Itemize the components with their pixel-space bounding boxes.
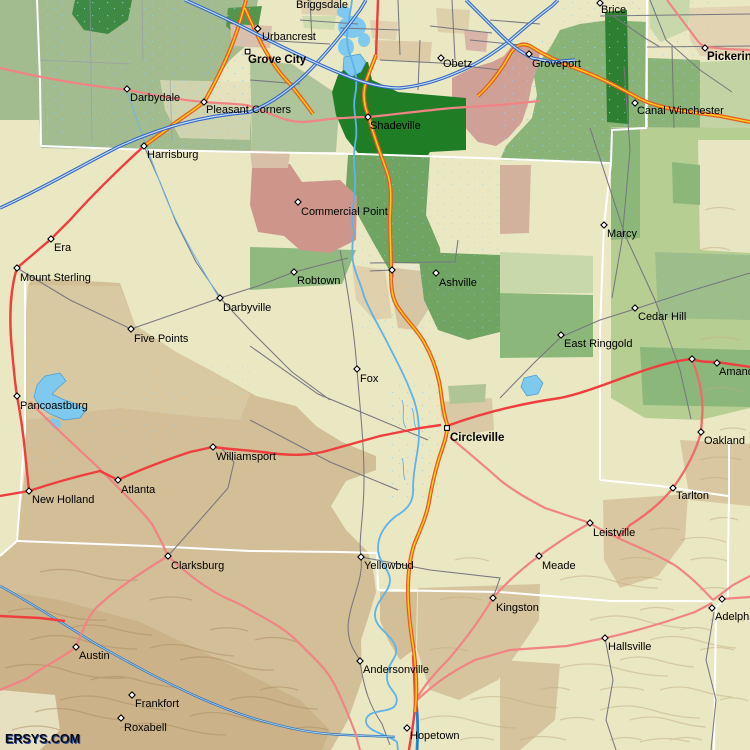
svg-text:Leistville: Leistville bbox=[593, 527, 635, 539]
svg-text:Andersonville: Andersonville bbox=[363, 664, 429, 676]
svg-text:Atlanta: Atlanta bbox=[121, 484, 156, 496]
svg-text:Harrisburg: Harrisburg bbox=[147, 149, 198, 161]
svg-text:Five Points: Five Points bbox=[134, 333, 189, 345]
svg-text:Tarlton: Tarlton bbox=[676, 490, 709, 502]
svg-text:Grove City: Grove City bbox=[248, 54, 307, 66]
svg-text:Era: Era bbox=[54, 242, 72, 254]
svg-text:Austin: Austin bbox=[79, 650, 110, 662]
svg-text:ERSYS.COM: ERSYS.COM bbox=[5, 732, 80, 746]
svg-text:Mount Sterling: Mount Sterling bbox=[20, 272, 91, 284]
svg-text:Roxabell: Roxabell bbox=[124, 722, 167, 734]
svg-text:Hopetown: Hopetown bbox=[410, 730, 460, 742]
svg-text:Circleville: Circleville bbox=[450, 432, 504, 444]
svg-text:Williamsport: Williamsport bbox=[216, 451, 276, 463]
svg-text:Pleasant Corners: Pleasant Corners bbox=[206, 104, 291, 116]
svg-text:Kingston: Kingston bbox=[496, 602, 539, 614]
svg-text:Commercial Point: Commercial Point bbox=[301, 206, 388, 218]
svg-text:Canal Winchester: Canal Winchester bbox=[637, 105, 724, 117]
svg-text:Darbyville: Darbyville bbox=[223, 302, 271, 314]
svg-text:Frankfort: Frankfort bbox=[135, 698, 179, 710]
svg-text:Hallsville: Hallsville bbox=[608, 641, 651, 653]
svg-text:Obetz: Obetz bbox=[443, 58, 472, 70]
svg-text:Cedar Hill: Cedar Hill bbox=[638, 311, 686, 323]
svg-text:Briggsdale: Briggsdale bbox=[296, 0, 348, 11]
svg-text:Amanda: Amanda bbox=[719, 366, 750, 378]
svg-text:Oakland: Oakland bbox=[704, 435, 745, 447]
svg-text:Ashville: Ashville bbox=[439, 277, 477, 289]
svg-text:Fox: Fox bbox=[360, 373, 379, 385]
svg-text:Shadeville: Shadeville bbox=[370, 120, 421, 132]
svg-text:Groveport: Groveport bbox=[532, 58, 581, 70]
svg-text:Yellowbud: Yellowbud bbox=[364, 560, 414, 572]
svg-text:Marcy: Marcy bbox=[607, 228, 637, 240]
svg-text:Pancoastburg: Pancoastburg bbox=[20, 400, 88, 412]
svg-text:Robtown: Robtown bbox=[297, 275, 340, 287]
svg-text:Pickerington: Pickerington bbox=[707, 51, 750, 63]
svg-text:Urbancrest: Urbancrest bbox=[262, 31, 316, 43]
svg-text:Brice: Brice bbox=[601, 4, 626, 16]
svg-text:East Ringgold: East Ringgold bbox=[564, 338, 633, 350]
svg-text:New Holland: New Holland bbox=[32, 494, 94, 506]
svg-text:Darbydale: Darbydale bbox=[130, 92, 180, 104]
svg-text:Clarksburg: Clarksburg bbox=[171, 560, 224, 572]
svg-text:Meade: Meade bbox=[542, 560, 576, 572]
svg-text:Adelphi: Adelphi bbox=[715, 611, 750, 623]
